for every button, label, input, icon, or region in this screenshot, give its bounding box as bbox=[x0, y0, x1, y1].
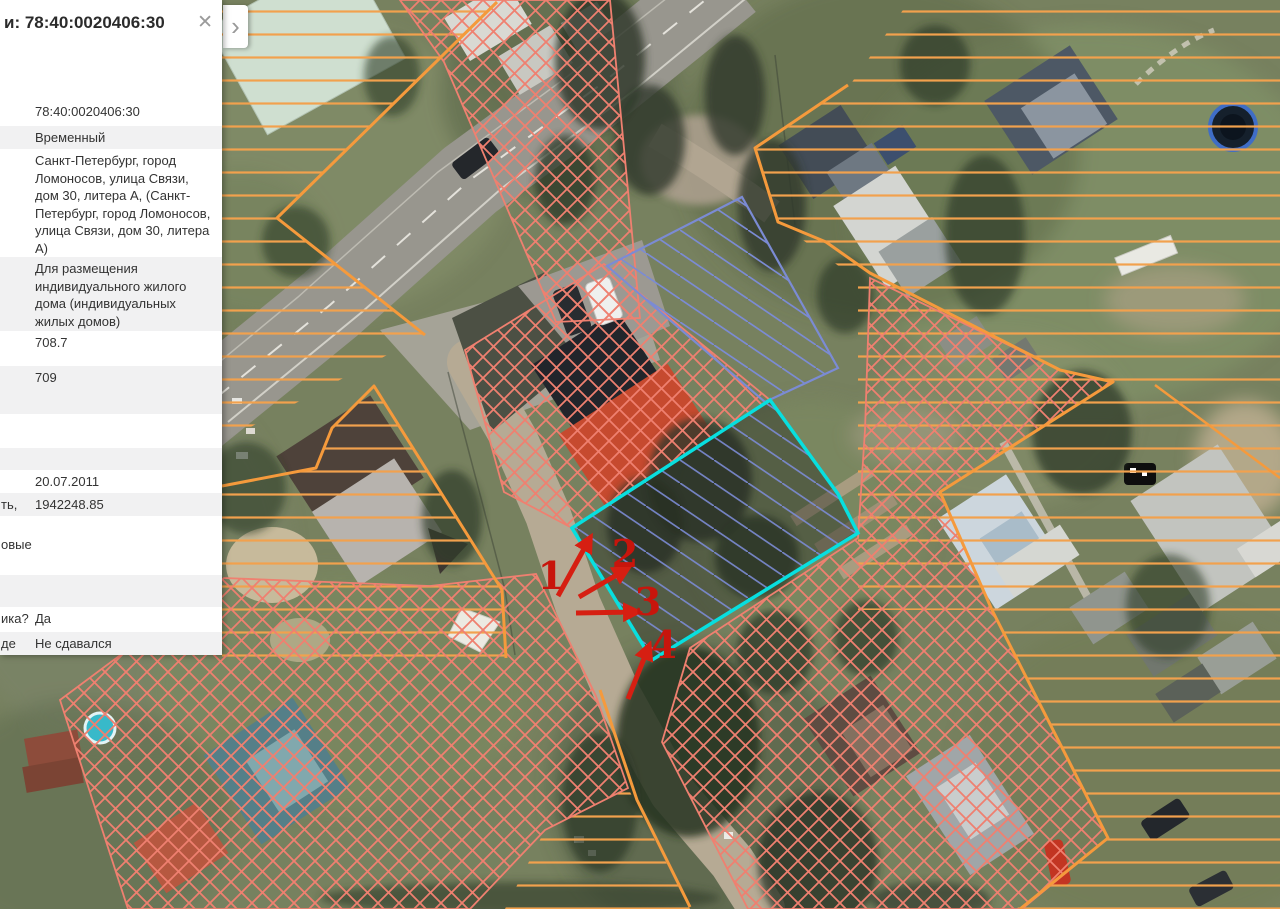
parcel-attributes: 78:40:0020406:30 Временный Санкт-Петербу… bbox=[0, 100, 222, 655]
panel-title: и: 78:40:0020406:30 bbox=[4, 13, 165, 33]
attr-row-empty bbox=[0, 448, 222, 470]
attr-value bbox=[35, 575, 222, 578]
attr-label: овые bbox=[1, 536, 32, 554]
annotation-number: 2 bbox=[612, 531, 638, 576]
attr-row-area-1: 708.7 bbox=[0, 331, 222, 366]
attr-value: 709 bbox=[35, 366, 222, 387]
attr-value: Для размещения индивидуального жилого до… bbox=[35, 257, 222, 330]
expand-panel-button[interactable]: › bbox=[223, 5, 248, 48]
attr-value: Да bbox=[35, 607, 222, 628]
annotation-number: 1 bbox=[538, 553, 564, 598]
attr-row-date: 20.07.2011 bbox=[0, 470, 222, 493]
attr-row-status: Временный bbox=[0, 126, 222, 149]
attr-row-empty bbox=[0, 414, 222, 448]
panel-header: и: 78:40:0020406:30 ✕ bbox=[0, 0, 222, 55]
attr-value bbox=[35, 448, 222, 451]
attr-value: 708.7 bbox=[35, 331, 222, 352]
attr-row-permitted-use: Для размещения индивидуального жилого до… bbox=[0, 257, 222, 331]
attr-row-not-rented: деНе сдавался bbox=[0, 632, 222, 655]
attr-label: ика? bbox=[1, 610, 29, 628]
arrow-3 bbox=[576, 612, 637, 613]
cadastral-map-app: 1 2 3 4 и: 78:40:0020406:30 ✕ 78:40:0020… bbox=[0, 0, 1280, 909]
attr-value: Не сдавался bbox=[35, 632, 222, 653]
attr-row-cadastral-value: ть,1942248.85 bbox=[0, 493, 222, 516]
attr-row-cadastral-number: 78:40:0020406:30 bbox=[0, 100, 222, 126]
annotation-number: 3 bbox=[635, 579, 661, 624]
attr-row-empty bbox=[0, 516, 222, 533]
attr-row-empty bbox=[0, 556, 222, 575]
attr-value: 20.07.2011 bbox=[35, 470, 222, 491]
chevron-right-icon: › bbox=[231, 11, 240, 42]
attr-row-empty bbox=[0, 575, 222, 607]
close-icon[interactable]: ✕ bbox=[197, 13, 213, 32]
attr-value bbox=[35, 533, 222, 536]
attr-row-yes: ика?Да bbox=[0, 607, 222, 632]
annotation-number: 4 bbox=[651, 622, 677, 667]
attr-value bbox=[35, 414, 222, 417]
attr-label: де bbox=[1, 635, 16, 653]
attr-row-fragment: овые bbox=[0, 533, 222, 556]
attr-label: ть, bbox=[1, 496, 17, 514]
attr-value bbox=[35, 556, 222, 559]
attr-value: 78:40:0020406:30 bbox=[35, 100, 222, 121]
attr-row-address: Санкт-Петербург, город Ломоносов, улица … bbox=[0, 149, 222, 257]
attr-value: Санкт-Петербург, город Ломоносов, улица … bbox=[35, 149, 222, 257]
attr-value bbox=[35, 516, 222, 519]
attr-value: Временный bbox=[35, 126, 222, 147]
parcel-info-panel: и: 78:40:0020406:30 ✕ 78:40:0020406:30 В… bbox=[0, 0, 222, 655]
attr-row-area-2: 709 bbox=[0, 366, 222, 414]
attr-value: 1942248.85 bbox=[35, 493, 222, 514]
